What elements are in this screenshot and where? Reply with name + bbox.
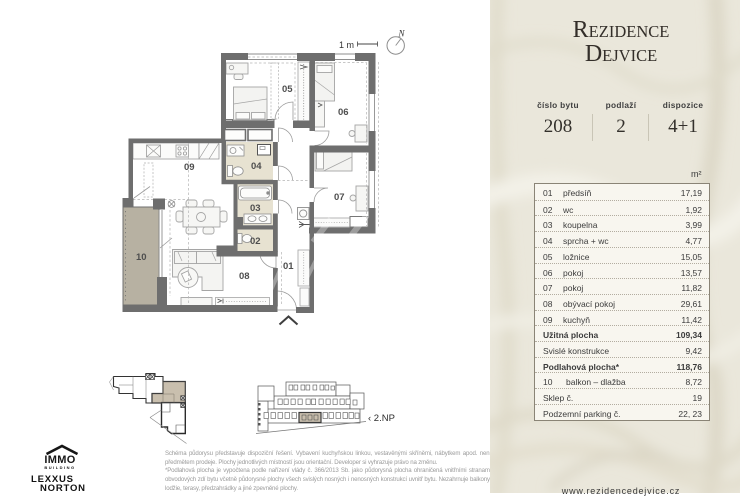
svg-text:05: 05 xyxy=(282,84,293,95)
svg-text:01: 01 xyxy=(283,261,294,272)
svg-text:04: 04 xyxy=(251,161,262,172)
svg-text:06: 06 xyxy=(338,107,349,118)
svg-text:10: 10 xyxy=(136,252,147,263)
svg-text:08: 08 xyxy=(239,271,250,282)
svg-text:N: N xyxy=(398,29,406,39)
svg-text:1 m: 1 m xyxy=(339,40,354,50)
svg-text:02: 02 xyxy=(250,236,261,247)
svg-text:07: 07 xyxy=(334,192,345,203)
svg-text:‹ 2.NP: ‹ 2.NP xyxy=(368,413,395,424)
svg-text:09: 09 xyxy=(184,162,195,173)
svg-text:03: 03 xyxy=(250,203,261,214)
